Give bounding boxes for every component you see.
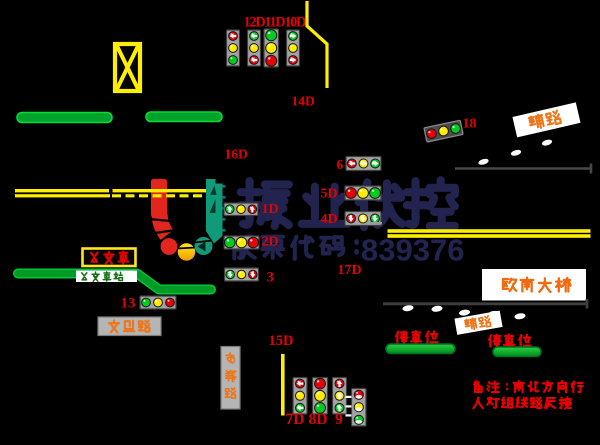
svg-text:12D11D10D: 12D11D10D bbox=[244, 15, 306, 31]
svg-text:15D: 15D bbox=[269, 333, 294, 349]
svg-text:5D: 5D bbox=[321, 187, 338, 202]
svg-text:14D: 14D bbox=[292, 94, 316, 109]
svg-text:13: 13 bbox=[121, 296, 136, 312]
svg-text:4D: 4D bbox=[321, 212, 338, 227]
svg-text:7D: 7D bbox=[286, 411, 305, 428]
svg-text:18: 18 bbox=[463, 117, 477, 132]
svg-text:3: 3 bbox=[267, 270, 275, 286]
svg-text:9: 9 bbox=[335, 411, 343, 428]
svg-text:2D: 2D bbox=[262, 235, 279, 250]
svg-text:16D: 16D bbox=[225, 147, 249, 162]
svg-text:6: 6 bbox=[337, 157, 344, 172]
svg-text:1D: 1D bbox=[262, 202, 279, 217]
svg-text:8D: 8D bbox=[309, 411, 328, 428]
svg-text:17D: 17D bbox=[338, 263, 362, 278]
